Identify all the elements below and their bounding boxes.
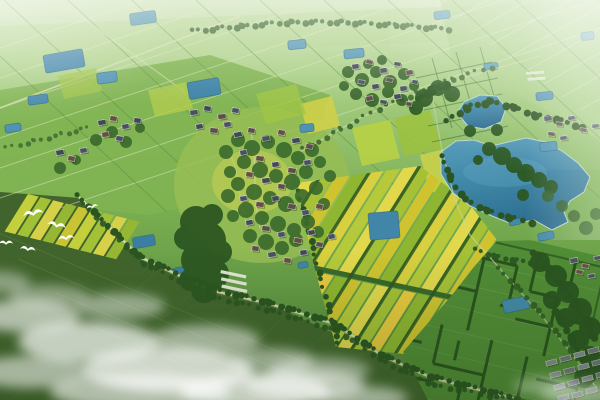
tree-clump (221, 189, 235, 203)
tree (331, 130, 335, 134)
aerial-landscape-image (0, 0, 600, 400)
building (240, 149, 248, 155)
building (102, 132, 109, 138)
building (204, 106, 211, 112)
tree (339, 127, 344, 132)
tree-clump (201, 204, 223, 226)
tree (361, 114, 365, 118)
tree (347, 124, 353, 130)
scene-root (0, 0, 600, 400)
tree-clump (219, 145, 233, 159)
tree (124, 244, 130, 250)
tree (490, 209, 495, 214)
haze-topleft (0, 0, 190, 130)
tree-clump (291, 151, 305, 165)
tree (452, 184, 458, 190)
building (292, 137, 301, 143)
building (308, 230, 316, 236)
tree-clump (174, 226, 198, 250)
building (246, 172, 253, 178)
building (278, 129, 286, 135)
tree (10, 144, 13, 147)
tree-clump (301, 215, 315, 229)
haze-right-edge (525, 0, 600, 240)
building (278, 184, 285, 190)
building (316, 242, 324, 248)
tree-clump (252, 162, 268, 178)
building (190, 109, 199, 115)
tree (67, 131, 72, 136)
aerial-landscape-figure: Bird's-eye architectural rendering of a … (0, 0, 600, 400)
tree (505, 213, 511, 219)
building (68, 156, 76, 162)
tree-clump (224, 166, 236, 178)
tree (105, 225, 110, 230)
tree (498, 212, 505, 219)
tree (369, 111, 373, 115)
tree (53, 133, 58, 138)
building (116, 136, 124, 142)
tree-clump (231, 177, 245, 191)
tree (59, 132, 63, 136)
tree (31, 138, 34, 141)
tree-clump (258, 234, 274, 250)
tree (316, 139, 321, 144)
building (256, 156, 264, 162)
tree (468, 200, 473, 205)
tree-clump (270, 216, 286, 232)
tree (309, 238, 316, 245)
tree-clump (324, 170, 336, 182)
tree (94, 215, 100, 221)
building (262, 136, 270, 142)
building (262, 226, 270, 232)
building (304, 160, 312, 166)
building (210, 128, 218, 134)
tree (3, 145, 7, 149)
tree (447, 177, 451, 181)
tree (324, 135, 330, 141)
tree-clump (246, 184, 262, 200)
tree (100, 220, 106, 226)
tree-clump (255, 211, 269, 225)
building (224, 122, 231, 128)
pond (300, 123, 315, 132)
building (262, 177, 271, 183)
building (80, 148, 88, 154)
building (272, 162, 279, 168)
building (288, 203, 297, 209)
tree (74, 192, 79, 197)
building (288, 167, 297, 173)
tree (39, 138, 43, 142)
tree-clump (54, 162, 66, 174)
cloud (513, 377, 577, 395)
tree-clump (295, 189, 309, 203)
tree (354, 118, 359, 123)
tree (476, 204, 483, 211)
building (232, 108, 240, 114)
building (248, 128, 256, 134)
building (306, 144, 313, 150)
tree-clump (299, 165, 313, 179)
tree (26, 141, 31, 146)
building (218, 114, 226, 120)
tree (377, 107, 383, 113)
tree-clump (243, 229, 257, 243)
tree (461, 195, 466, 200)
tree-clump (237, 155, 251, 169)
building (272, 196, 279, 202)
tree (520, 218, 526, 224)
cloud (270, 357, 370, 383)
building (278, 232, 285, 238)
tree (483, 206, 488, 211)
tree-clump (227, 210, 239, 222)
tree (87, 208, 91, 212)
building (240, 196, 248, 202)
tree (300, 146, 304, 150)
pond (368, 211, 400, 241)
tree (81, 202, 85, 206)
tree (47, 136, 52, 141)
cloud (150, 325, 260, 355)
tree-clump (276, 142, 292, 158)
tree (512, 215, 517, 220)
building (246, 219, 254, 225)
building (256, 202, 264, 208)
building (56, 149, 65, 155)
tree-clump (90, 134, 102, 146)
tree-clump (238, 202, 254, 218)
tree-clump (284, 174, 300, 190)
building (316, 204, 323, 210)
building (302, 210, 310, 216)
tree (18, 143, 23, 148)
tree (117, 238, 122, 243)
building (294, 237, 303, 243)
tree (110, 231, 114, 235)
cloud (75, 293, 165, 319)
tree-clump (309, 181, 323, 195)
building (196, 124, 204, 130)
tree-clump (314, 156, 326, 168)
building (328, 234, 335, 240)
